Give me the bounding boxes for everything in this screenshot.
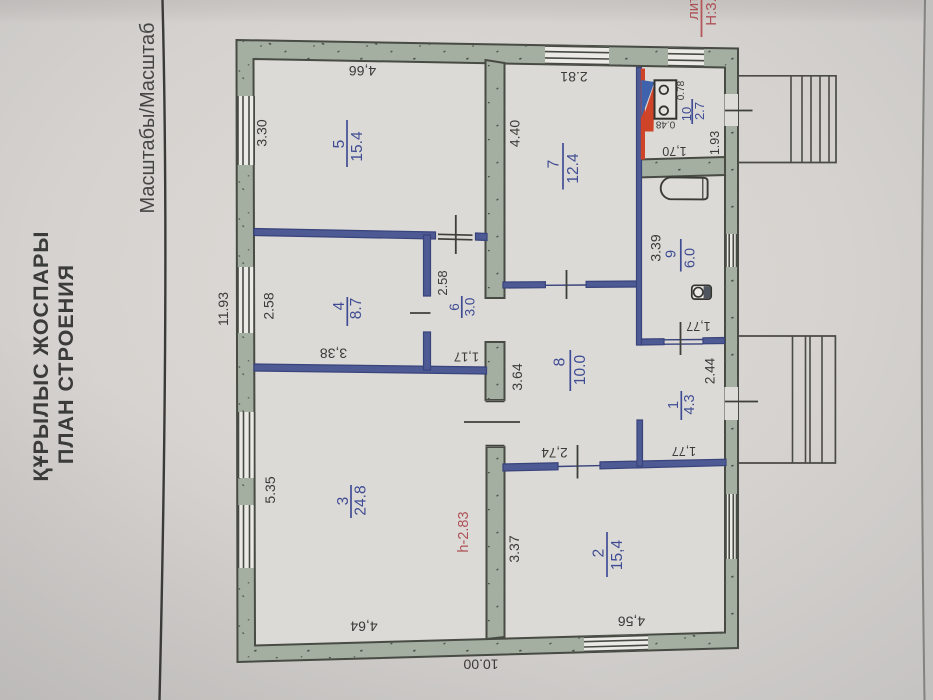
- svg-text:15.4: 15.4: [349, 131, 366, 162]
- svg-text:1,70: 1,70: [662, 144, 686, 158]
- svg-text:3,38: 3,38: [320, 346, 347, 362]
- svg-text:ҚҰРЫЛЫС ЖОСПАРЫ: ҚҰРЫЛЫС ЖОСПАРЫ: [29, 231, 53, 482]
- svg-text:2.58: 2.58: [261, 292, 277, 319]
- svg-text:1.93: 1.93: [708, 131, 722, 155]
- svg-text:3.30: 3.30: [254, 119, 270, 146]
- svg-text:2.81: 2.81: [560, 69, 587, 85]
- svg-text:15,4: 15,4: [609, 540, 626, 571]
- svg-text:7: 7: [546, 160, 563, 169]
- svg-text:лит: лит: [685, 0, 702, 20]
- svg-text:6: 6: [447, 303, 462, 311]
- svg-text:4,66: 4,66: [349, 63, 376, 79]
- svg-text:2.58: 2.58: [435, 270, 450, 295]
- svg-text:1,77: 1,77: [686, 319, 710, 333]
- svg-text:2,74: 2,74: [541, 445, 568, 460]
- svg-text:3.37: 3.37: [506, 535, 522, 562]
- svg-text:5.35: 5.35: [262, 476, 278, 503]
- svg-text:12.4: 12.4: [565, 153, 582, 184]
- svg-text:6.0: 6.0: [682, 248, 698, 268]
- svg-text:3.64: 3.64: [509, 363, 525, 390]
- svg-text:0.78: 0.78: [676, 80, 687, 100]
- svg-text:10.00: 10.00: [463, 657, 498, 673]
- svg-text:1,77: 1,77: [672, 444, 696, 458]
- svg-text:4,64: 4,64: [350, 619, 377, 635]
- svg-text:8.7: 8.7: [348, 298, 365, 320]
- svg-text:1: 1: [666, 401, 682, 409]
- svg-text:3.0: 3.0: [462, 298, 477, 317]
- svg-text:ПЛАН СТРОЕНИЯ: ПЛАН СТРОЕНИЯ: [54, 264, 78, 464]
- svg-text:4.40: 4.40: [507, 120, 523, 147]
- svg-text:4,56: 4,56: [618, 614, 645, 630]
- svg-text:3: 3: [335, 497, 352, 506]
- svg-text:2.44: 2.44: [703, 357, 718, 384]
- svg-text:0.48: 0.48: [655, 119, 675, 130]
- svg-text:9: 9: [664, 250, 680, 258]
- svg-text:5: 5: [331, 140, 348, 149]
- svg-text:8: 8: [552, 358, 569, 367]
- svg-text:4.3: 4.3: [682, 394, 698, 414]
- svg-text:1,17: 1,17: [454, 350, 479, 365]
- svg-text:2: 2: [591, 549, 608, 558]
- svg-text:24.8: 24.8: [353, 485, 370, 515]
- svg-text:3.39: 3.39: [648, 234, 664, 261]
- svg-text:4: 4: [331, 301, 348, 310]
- svg-text:11.93: 11.93: [215, 292, 231, 326]
- svg-text:10.0: 10.0: [572, 355, 589, 386]
- svg-text:Масштабы/Масштаб: Масштабы/Масштаб: [137, 22, 159, 213]
- svg-text:h-2.83: h-2.83: [456, 511, 472, 552]
- svg-text:2.7: 2.7: [692, 102, 707, 120]
- svg-text:Н:3.: Н:3.: [703, 0, 720, 26]
